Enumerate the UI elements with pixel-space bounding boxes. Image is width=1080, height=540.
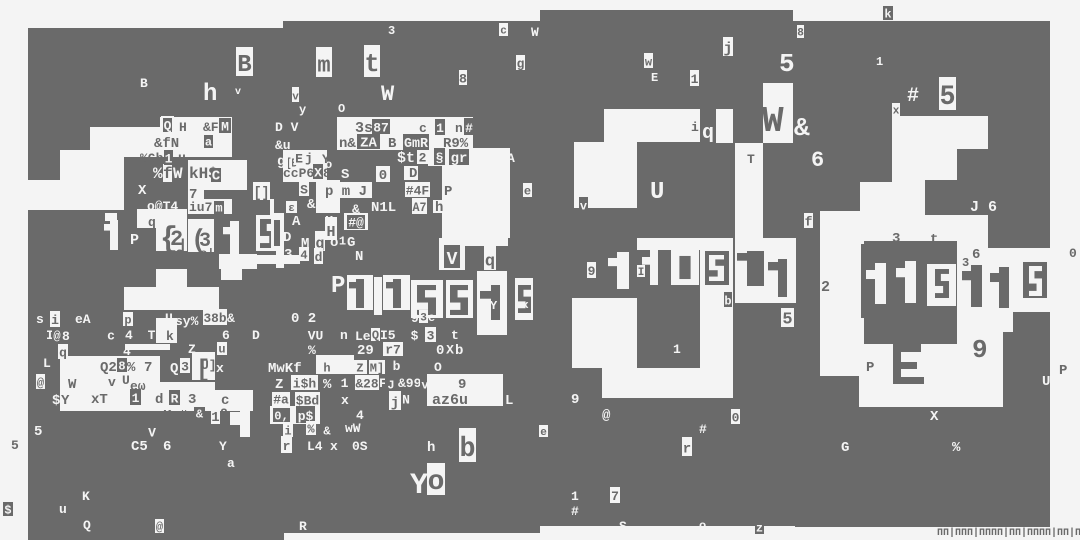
svg-text:&99: &99 [398,376,422,391]
svg-text:f: f [805,214,813,229]
svg-text:1: 1 [339,235,346,249]
svg-text:#4F: #4F [406,183,430,198]
svg-text:u: u [218,343,225,357]
svg-text:az6u: az6u [432,392,468,409]
svg-text:$t: $t [397,150,415,167]
svg-text:8: 8 [62,329,70,344]
svg-text:h: h [203,81,217,108]
svg-text:B: B [237,52,251,79]
svg-text:N1L: N1L [371,200,396,216]
svg-text:ΠΠ|ΠΠΠ|ΠΠΠΠ|ΠΠ|ΠΠΠΠ|ΠΠ|Π: ΠΠ|ΠΠΠ|ΠΠΠΠ|ΠΠ|ΠΠΠΠ|ΠΠ|Π [937,527,1080,539]
svg-text:R: R [299,519,307,534]
svg-text:f: f [163,165,173,183]
svg-text:q: q [702,122,714,145]
svg-text:v: v [292,91,299,103]
svg-text:0S: 0S [352,439,368,454]
svg-text:N: N [402,392,410,407]
svg-text:5: 5 [34,424,42,440]
svg-text:x: x [330,439,338,454]
svg-text:c: c [419,121,427,136]
svg-text:J 6: J 6 [970,199,997,216]
svg-text:9: 9 [588,264,596,279]
svg-text:ε: ε [288,203,295,215]
svg-text:6: 6 [972,247,980,263]
svg-text:W: W [68,377,77,393]
svg-text:4: 4 [123,344,131,359]
svg-text:j: j [305,151,313,166]
svg-text:I: I [638,267,645,279]
svg-text:1: 1 [571,489,579,504]
svg-text:V: V [447,250,458,270]
svg-text:c: c [107,328,115,343]
svg-text:i: i [691,120,699,135]
svg-text:6: 6 [811,148,824,173]
svg-text:1: 1 [436,121,444,136]
svg-text:5: 5 [940,82,956,113]
svg-text:0: 0 [732,410,740,425]
svg-text:b: b [393,359,401,374]
svg-text:Q: Q [164,119,172,134]
svg-text:P: P [1059,363,1067,379]
svg-text:H: H [179,120,187,135]
svg-text:n: n [214,186,222,201]
svg-text:%Gb: %Gb [140,151,164,166]
svg-text:n: n [455,121,463,136]
svg-text:r: r [683,442,691,458]
svg-text:O: O [338,102,345,116]
svg-text:X: X [446,343,454,358]
svg-text:N: N [355,249,363,265]
svg-text:7: 7 [144,360,152,376]
svg-text:D: D [283,230,291,246]
svg-text:Le: Le [355,329,371,344]
svg-text:e: e [540,427,547,439]
svg-text:8: 8 [459,71,467,86]
svg-text:W: W [381,82,395,107]
svg-text:1: 1 [211,410,219,426]
svg-text:d: d [315,250,323,265]
svg-text:Y: Y [410,469,428,503]
svg-text:9: 9 [458,377,466,393]
svg-text:x: x [216,361,224,376]
svg-text:#@: #@ [348,216,364,231]
svg-text:8: 8 [118,360,125,374]
svg-text:h: h [435,200,443,216]
svg-text:%: % [307,423,315,437]
svg-text:M]: M] [370,362,384,376]
svg-text:s: s [36,312,44,327]
svg-text:gr: gr [451,151,468,167]
svg-text:T: T [747,152,755,167]
svg-text:Y: Y [322,152,330,167]
svg-text:W: W [173,165,183,183]
svg-text:o: o [699,519,706,533]
svg-text:D V: D V [275,120,299,135]
svg-text:P: P [130,232,139,249]
svg-text:o|: o| [200,247,214,261]
svg-text:y: y [299,103,306,117]
svg-text:%: % [308,343,316,358]
svg-text:$: $ [4,504,11,518]
svg-text:38b: 38b [204,311,227,326]
svg-text:q: q [148,215,156,230]
svg-text:v: v [235,87,241,98]
svg-text:&: & [196,408,204,422]
svg-text:J: J [387,378,394,392]
svg-text:29: 29 [357,343,374,359]
svg-text:5: 5 [779,49,795,79]
svg-text:r7: r7 [385,343,401,358]
svg-text:0: 0 [1069,246,1077,261]
svg-text:$: $ [411,328,419,343]
svg-text:E: E [295,151,303,166]
svg-text:0: 0 [436,343,444,359]
svg-text:9: 9 [972,335,988,365]
svg-text:j: j [391,396,399,412]
svg-text:sy%: sy% [175,314,199,329]
svg-text:C5: C5 [131,439,148,455]
svg-text:o: o [330,235,338,251]
svg-text:S: S [300,183,308,198]
svg-text:P: P [866,360,874,376]
svg-text:|: | [178,237,188,255]
svg-text:ZA: ZA [360,135,377,151]
svg-text:&: & [307,197,316,213]
svg-text:E: E [651,71,658,85]
svg-text:1: 1 [673,342,681,357]
svg-text:O: O [434,360,442,375]
svg-text:S: S [341,167,349,183]
svg-text:A7: A7 [413,200,427,215]
svg-text:u: u [59,502,67,517]
svg-text:2: 2 [419,151,427,166]
svg-text:i$h: i$h [293,376,317,391]
svg-text:Z: Z [275,377,283,393]
svg-text:w: w [645,55,653,69]
svg-text:3: 3 [388,24,395,38]
svg-text:#a: #a [273,393,289,408]
svg-text:@: @ [37,376,44,390]
svg-text:o: o [428,467,445,498]
svg-text:7: 7 [611,489,619,504]
svg-text:3: 3 [427,328,435,343]
svg-text:U: U [650,179,664,206]
svg-text:Q: Q [83,518,91,533]
svg-text:m: m [215,202,222,216]
svg-text:9: 9 [571,392,579,408]
svg-text:1: 1 [132,391,140,406]
svg-text:3: 3 [892,231,900,247]
svg-text:m: m [317,54,330,79]
svg-text:P: P [331,273,345,300]
svg-text:S: S [619,519,627,534]
svg-text:4: 4 [125,328,133,343]
svg-text:i: i [51,313,59,328]
svg-text:V: V [148,425,156,440]
svg-text:eA: eA [75,312,91,327]
svg-text:&28: &28 [356,376,379,391]
svg-text:L: L [43,356,51,371]
svg-text:@: @ [53,330,60,344]
svg-text:M: M [221,119,229,134]
svg-text:o@T4: o@T4 [147,199,178,214]
svg-text:3: 3 [188,392,196,408]
svg-text:B: B [140,76,148,91]
svg-text:1: 1 [876,55,883,69]
svg-text:#: # [699,422,707,437]
svg-text:&fN: &fN [154,136,179,152]
svg-text:X: X [138,183,147,199]
svg-text:#: # [465,121,473,136]
svg-text:A: A [292,214,301,230]
svg-text:1: 1 [341,376,349,391]
svg-text:&: & [227,311,235,326]
svg-text:$: $ [52,393,60,409]
svg-text:z: z [756,522,763,536]
svg-text:x: x [893,106,900,118]
svg-text:%: % [952,440,961,456]
svg-text:0 2: 0 2 [291,311,316,327]
svg-text:#: # [571,504,579,519]
svg-text:ccP6: ccP6 [283,166,314,181]
svg-text:a: a [205,136,212,150]
svg-text:#: # [907,85,919,108]
svg-text:P: P [444,184,452,200]
svg-text:2: 2 [821,279,830,296]
svg-text:I5: I5 [380,328,396,343]
svg-text:j: j [723,41,732,58]
svg-text:g: g [517,56,525,71]
svg-text:MwKf: MwKf [268,361,302,377]
svg-text:%: % [153,165,163,183]
svg-text:U: U [122,373,130,388]
svg-text:n: n [340,328,348,343]
svg-text:q: q [59,345,67,360]
svg-text:b: b [460,434,476,465]
svg-text:t: t [930,232,938,248]
svg-text:87: 87 [373,120,389,135]
svg-text:Q: Q [372,329,379,343]
svg-text:iu7: iu7 [189,200,212,215]
svg-text:3: 3 [962,256,969,270]
svg-text:p m J: p m J [325,184,367,200]
svg-text:Q2: Q2 [100,360,117,376]
svg-text:W: W [762,101,784,142]
svg-text:6: 6 [163,439,171,455]
svg-text:4: 4 [300,249,307,263]
svg-text:1: 1 [691,72,699,87]
svg-text:&: & [323,425,331,439]
svg-text:x: x [341,393,349,408]
svg-text:X: X [314,165,322,180]
svg-text:X: X [930,409,939,425]
svg-text:K: K [163,408,172,424]
svg-text:U: U [1042,374,1050,390]
svg-text:d: d [155,392,163,408]
svg-text:t: t [365,49,380,79]
svg-text:r: r [283,439,291,454]
svg-text:G: G [841,440,849,456]
svg-text:v: v [108,375,116,390]
svg-text:%: % [323,377,332,393]
svg-text:h: h [427,440,435,456]
svg-text:b: b [455,343,463,359]
svg-text:#: # [179,408,187,424]
svg-text:0: 0 [379,168,387,184]
svg-text:D: D [252,328,260,343]
svg-text:v: v [580,199,587,213]
svg-text:Z: Z [356,362,363,376]
svg-text:p: p [124,314,131,328]
svg-text:L4: L4 [307,439,323,454]
svg-text:W: W [531,25,539,40]
svg-text:L: L [505,393,513,409]
svg-text:8: 8 [797,28,804,40]
svg-text:xT: xT [91,392,108,408]
svg-text:Y: Y [61,393,70,409]
svg-text:k: k [166,329,174,344]
svg-text:D: D [409,166,417,182]
svg-text:a: a [227,456,235,471]
svg-text:@: @ [602,408,611,424]
svg-text:h: h [323,362,330,376]
svg-text:6: 6 [222,328,230,343]
svg-text:t: t [451,328,459,343]
svg-text:&F: &F [203,120,219,135]
svg-text:9: 9 [411,311,419,326]
svg-text:U]: U] [201,358,217,373]
svg-text:5: 5 [11,438,19,453]
svg-text:c: c [500,26,507,38]
svg-text:8: 8 [323,166,331,181]
svg-text:n&: n& [339,136,356,152]
svg-text:3: 3 [284,247,292,263]
svg-text:T: T [148,328,156,343]
svg-text:Q: Q [170,361,178,377]
svg-text:5: 5 [782,311,792,330]
svg-text:0,: 0, [274,410,288,424]
svg-text:e: e [524,185,531,199]
svg-text:3: 3 [420,313,427,325]
svg-text:wW: wW [345,421,361,436]
svg-text:b: b [724,294,731,308]
svg-text:k: k [884,8,891,22]
svg-text:K: K [82,489,90,504]
svg-text:B: B [388,136,397,152]
svg-text:x: x [522,300,529,312]
svg-text:VU: VU [308,329,324,344]
svg-text:2: 2 [220,406,228,421]
svg-text:@: @ [156,521,163,535]
svg-text:§: § [436,151,444,166]
svg-text:e: e [428,311,435,325]
svg-text:Y: Y [219,439,227,454]
svg-text:A: A [507,151,515,166]
svg-text:q: q [485,253,495,272]
svg-text:Y: Y [490,299,498,313]
svg-text:&: & [794,113,810,143]
svg-text:R: R [171,391,179,406]
svg-text:C: C [212,169,221,185]
svg-text:[]: [] [254,185,270,202]
svg-text:3: 3 [181,359,189,374]
